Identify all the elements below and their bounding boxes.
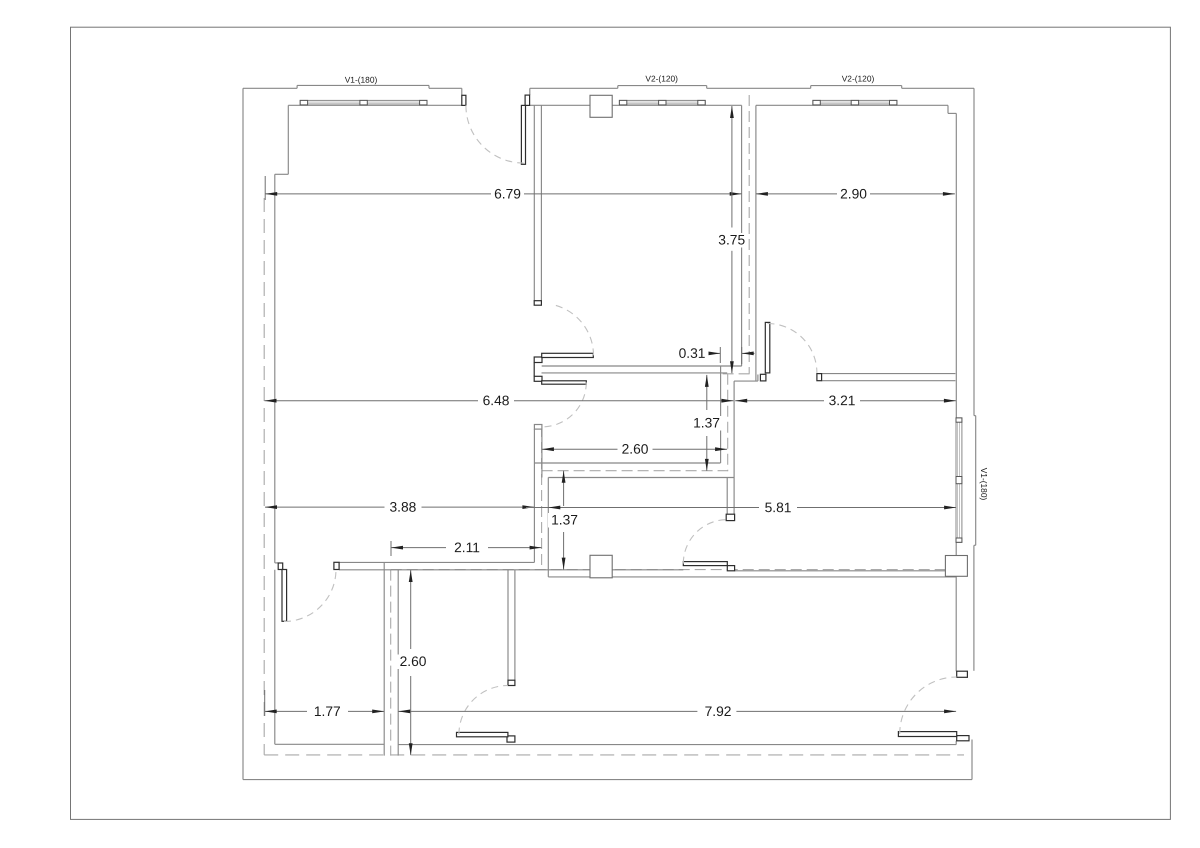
svg-text:2.60: 2.60 xyxy=(622,442,649,457)
svg-text:2.11: 2.11 xyxy=(454,540,480,555)
svg-text:7.92: 7.92 xyxy=(705,704,732,719)
svg-text:V2-(120): V2-(120) xyxy=(842,73,875,83)
svg-text:V1-(180): V1-(180) xyxy=(345,75,378,85)
svg-text:V2-(120): V2-(120) xyxy=(645,73,678,83)
svg-text:0.31: 0.31 xyxy=(679,346,706,361)
svg-text:5.81: 5.81 xyxy=(765,500,792,515)
svg-text:2.90: 2.90 xyxy=(840,186,867,201)
svg-text:2.60: 2.60 xyxy=(400,654,427,669)
svg-text:1.37: 1.37 xyxy=(551,512,578,527)
svg-text:V1-(180): V1-(180) xyxy=(979,468,989,501)
svg-text:1.77: 1.77 xyxy=(314,704,341,719)
svg-text:1.37: 1.37 xyxy=(693,415,720,430)
svg-text:6.79: 6.79 xyxy=(494,186,521,201)
svg-text:6.48: 6.48 xyxy=(483,393,510,408)
svg-text:3.88: 3.88 xyxy=(389,500,416,515)
svg-text:3.75: 3.75 xyxy=(718,232,745,247)
svg-text:3.21: 3.21 xyxy=(829,393,856,408)
